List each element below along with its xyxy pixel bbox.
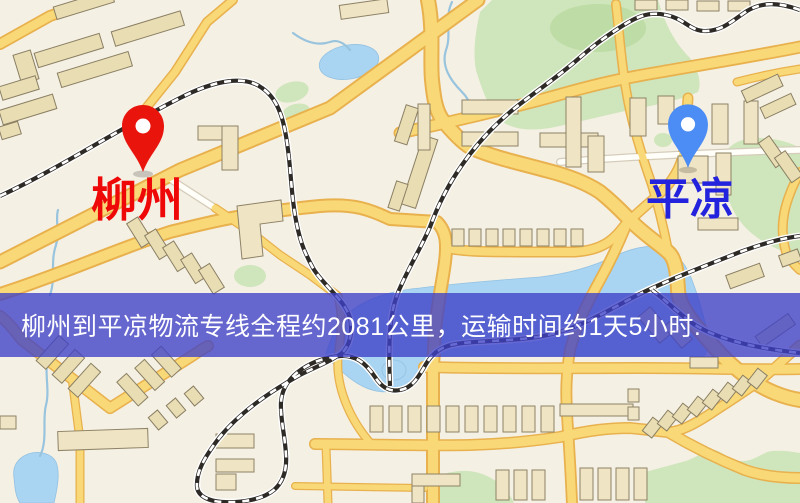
lake-southwest [14,452,59,503]
map-canvas: 柳州 平凉 [0,0,800,503]
map-view[interactable]: 柳州 平凉 柳州到平凉物流专线全程约2081公里，运输时间约1天5小时. [0,0,800,503]
route-banner-text: 柳州到平凉物流专线全程约2081公里，运输时间约1天5小时. [0,307,701,343]
pond [382,360,406,380]
destination-label: 平凉 [646,175,734,224]
route-banner: 柳州到平凉物流专线全程约2081公里，运输时间约1天5小时. [0,293,800,357]
origin-pin-hole [136,119,151,134]
destination-pin-hole [681,117,695,131]
origin-label: 柳州 [91,174,183,226]
